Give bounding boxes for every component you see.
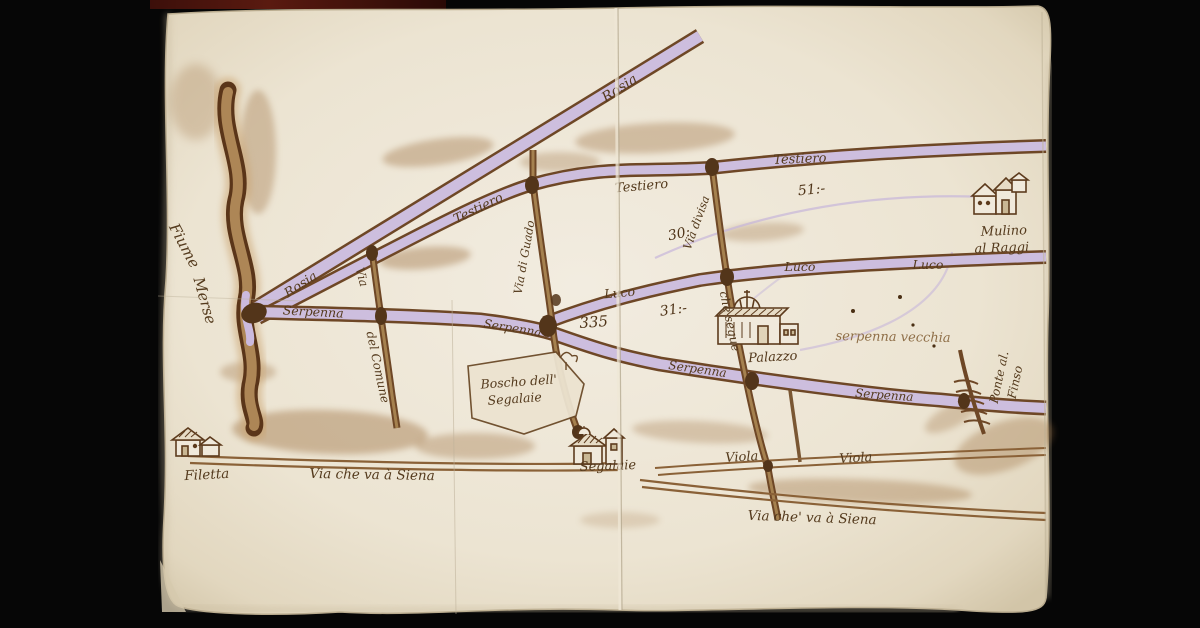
label-mulino-2: al Raggi [974,240,1029,257]
label-viola-2: Viola [839,450,873,467]
label-testiero-3: Testiero [773,151,827,168]
label-mulino-1: Mulino [980,223,1028,240]
measure-51: 51:- [797,181,826,200]
label-palazzo: Palazzo [747,349,798,367]
label-luco-2: Luco [784,259,816,274]
label-luco-3: Luco [912,257,944,272]
scan-background: c n [0,0,1200,628]
label-via-siena-1: Via che va à Siena [309,466,435,484]
label-segalaie: Segalaie [579,458,636,475]
measure-335: 335 [579,312,609,332]
label-serpenna-vecchia: serpenna vecchia [835,329,950,346]
label-serpenna-1: Serpenna [282,302,344,320]
manuscript-map: c n [0,0,1200,628]
label-filetta: Filetta [183,466,230,484]
label-viola-1: Viola [725,449,759,466]
